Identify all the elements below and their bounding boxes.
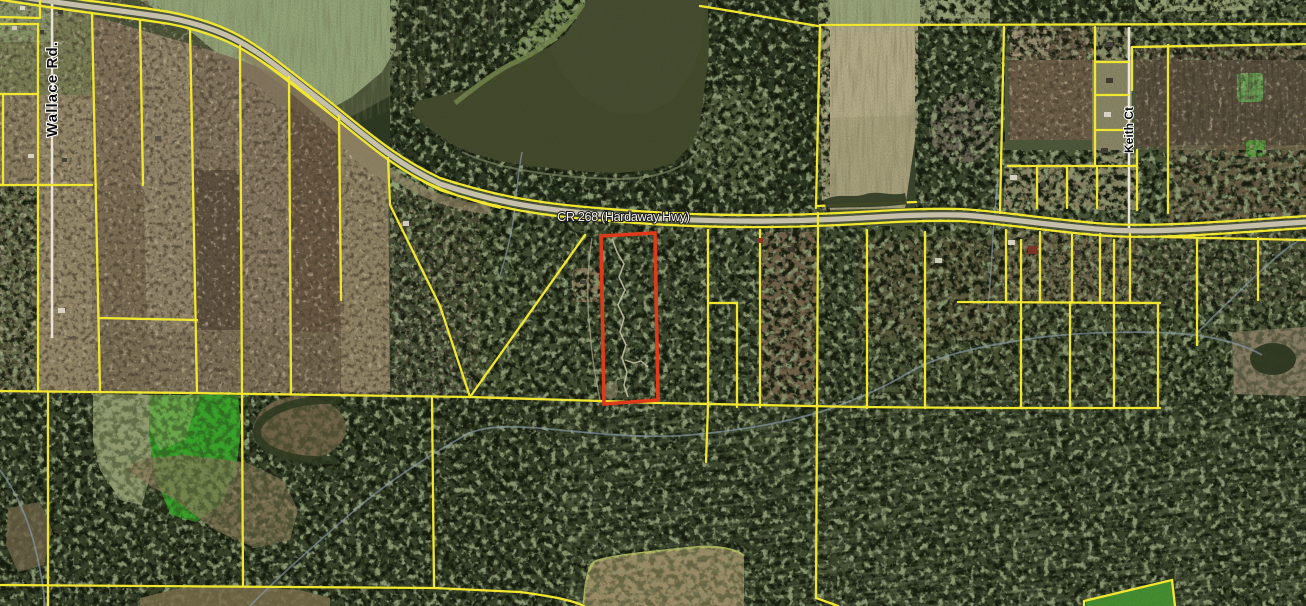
- svg-text:CR 268 (Hardaway Hwy): CR 268 (Hardaway Hwy): [557, 209, 690, 224]
- svg-text:Wallace Rd.: Wallace Rd.: [44, 42, 61, 137]
- svg-text:Keith Ct: Keith Ct: [1122, 107, 1136, 153]
